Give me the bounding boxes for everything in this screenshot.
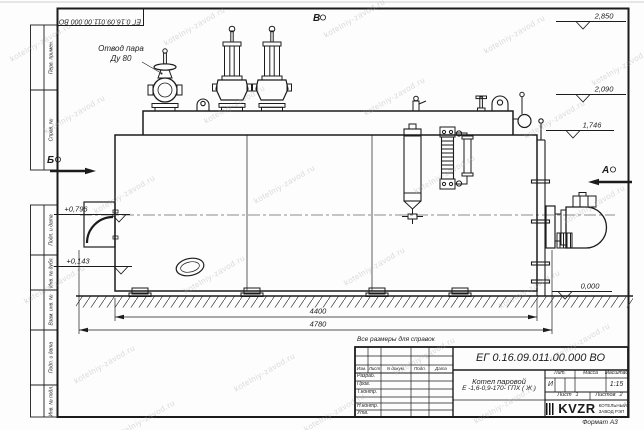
- svg-text:Ду 80: Ду 80: [110, 54, 132, 63]
- doc-number-rotated: ЕГ 0.16.09.011.00.000 ВО: [58, 18, 141, 25]
- lit-value: И: [546, 379, 555, 391]
- sample-cooler: [402, 124, 423, 224]
- dim-overall-length: 4780: [310, 320, 328, 329]
- svg-text:2,090: 2,090: [594, 85, 615, 94]
- water-level-gauge: [440, 127, 473, 189]
- row-prov: Пров.: [357, 381, 381, 389]
- view-arrows: Б А В: [47, 13, 632, 185]
- col-izm: Изм.: [355, 365, 368, 373]
- steam-outlet-valve: [148, 49, 182, 111]
- title-doc-number: ЕГ 0.16.09.011.00.000 ВО: [455, 349, 626, 368]
- sheet-label: Лист: [557, 393, 571, 399]
- drawing-sheet: ЕГ 0.16.09.011.00.000 ВО Перв. примен. С…: [0, 0, 644, 430]
- sheets-label: Листов: [595, 393, 615, 399]
- svg-text:+0,143: +0,143: [66, 257, 90, 266]
- row-tkontr: Т.контр.: [357, 389, 381, 397]
- safety-valve-right: [253, 26, 292, 111]
- kvzr-logo-text: KVZR: [558, 402, 595, 416]
- front-sight-box: [84, 202, 118, 247]
- col-podp: Подп.: [411, 365, 429, 373]
- rear-wall: [532, 119, 550, 296]
- note-reference-dims: Все размеры для справок: [357, 336, 467, 345]
- col-ndokum: N докум.: [381, 365, 411, 373]
- svg-text:1,746: 1,746: [583, 121, 603, 130]
- company-name-line2: ЗАВОД РЭП: [599, 409, 627, 414]
- svg-text:0,000: 0,000: [581, 282, 601, 291]
- dim-body-length: 4400: [310, 307, 328, 316]
- product-name-cell: Котел паровой Е -1,6-0,9-170- ГПХ ( Ж ): [455, 372, 543, 398]
- elevation-marks: [54, 22, 626, 300]
- kvzr-logo-mark: [546, 403, 555, 415]
- support-feet: [129, 288, 471, 297]
- manhole: [175, 256, 206, 278]
- svg-text:2,850: 2,850: [594, 12, 615, 21]
- sheet-cell: Лист 1: [547, 392, 589, 400]
- burner-assembly: [546, 193, 607, 249]
- svg-text:Инв. № дубл.: Инв. № дубл.: [49, 257, 55, 288]
- svg-text:Справ. №: Справ. №: [49, 118, 55, 141]
- svg-text:Отвод пара: Отвод пара: [98, 44, 144, 53]
- svg-text:Подп. и дата: Подп. и дата: [49, 214, 55, 246]
- steam-outlet-callout: Отвод пара Ду 80: [98, 44, 162, 75]
- product-designation: Е -1,6-0,9-170- ГПХ ( Ж ): [462, 386, 536, 393]
- view-v-label: В: [313, 13, 320, 24]
- ground-line: [76, 296, 633, 308]
- svg-text:Взам. инв. №: Взам. инв. №: [49, 294, 55, 326]
- svg-text:Подп. и дата: Подп. и дата: [49, 342, 55, 374]
- lit-header: Лит.: [546, 370, 574, 378]
- view-b-label: Б: [47, 155, 54, 166]
- scale-value: 1:15: [606, 379, 627, 391]
- sheets-cell: Листов 2: [591, 392, 627, 400]
- boiler-body: [80, 111, 615, 291]
- row-nkontr: Н.контр.: [357, 403, 381, 410]
- elevation-labels: 2,850 2,090 1,746 +0,796 +0,143 0,000: [64, 12, 614, 291]
- view-a-label: А: [601, 165, 609, 176]
- col-list: Лист: [368, 365, 381, 373]
- col-data: Дата: [429, 365, 453, 373]
- frame-stamp-labels: Перв. примен. Справ. № Подп. и дата Инв.…: [49, 41, 55, 417]
- svg-text:+0,796: +0,796: [64, 205, 88, 214]
- safety-valve-left: [213, 26, 252, 111]
- sheet-value: 1: [576, 393, 579, 399]
- mass-header: Масса: [576, 370, 605, 378]
- row-utv: Утв.: [357, 410, 381, 417]
- scale-header: Масштаб: [606, 370, 627, 378]
- row-razrab: Разраб.: [357, 373, 381, 381]
- company-name: КОТЕЛЬНЫЙ ЗАВОД РЭП: [599, 403, 627, 413]
- svg-text:Инв. № подл.: Инв. № подл.: [49, 385, 55, 416]
- company-cell: KVZR КОТЕЛЬНЫЙ ЗАВОД РЭП: [546, 401, 627, 416]
- svg-text:Перв. примен.: Перв. примен.: [49, 41, 55, 74]
- company-name-line1: КОТЕЛЬНЫЙ: [599, 403, 627, 408]
- sheets-value: 2: [619, 393, 622, 399]
- format-label: Формат А3: [560, 418, 640, 428]
